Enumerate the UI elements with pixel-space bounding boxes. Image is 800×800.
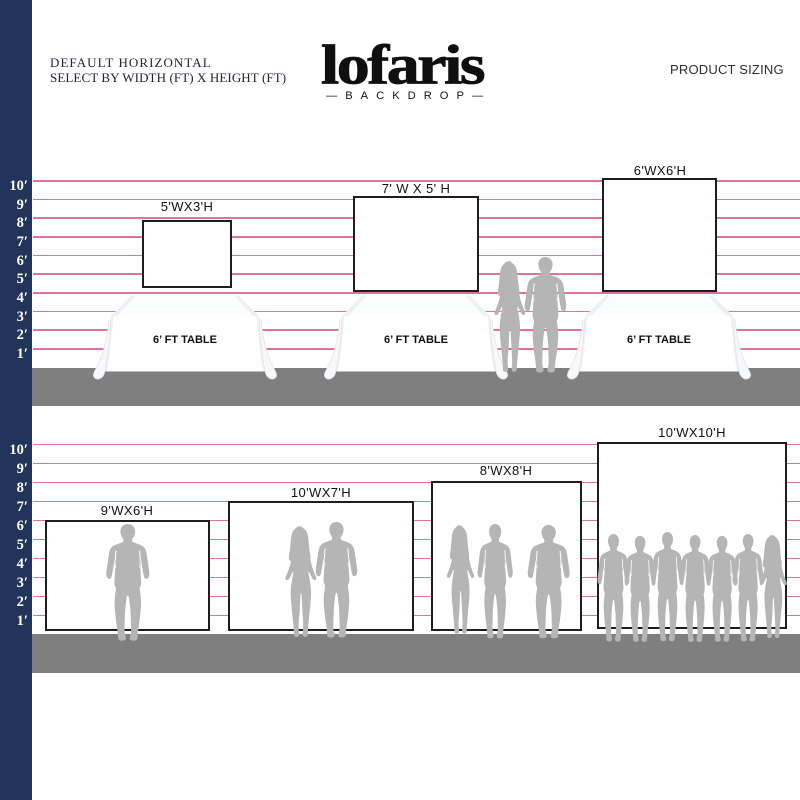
- svg-text:lofaris: lofaris: [321, 34, 485, 96]
- svg-text:6’ FT TABLE: 6’ FT TABLE: [627, 334, 691, 346]
- svg-text:6’ FT TABLE: 6’ FT TABLE: [384, 334, 448, 346]
- svg-text:6’ FT TABLE: 6’ FT TABLE: [153, 334, 217, 346]
